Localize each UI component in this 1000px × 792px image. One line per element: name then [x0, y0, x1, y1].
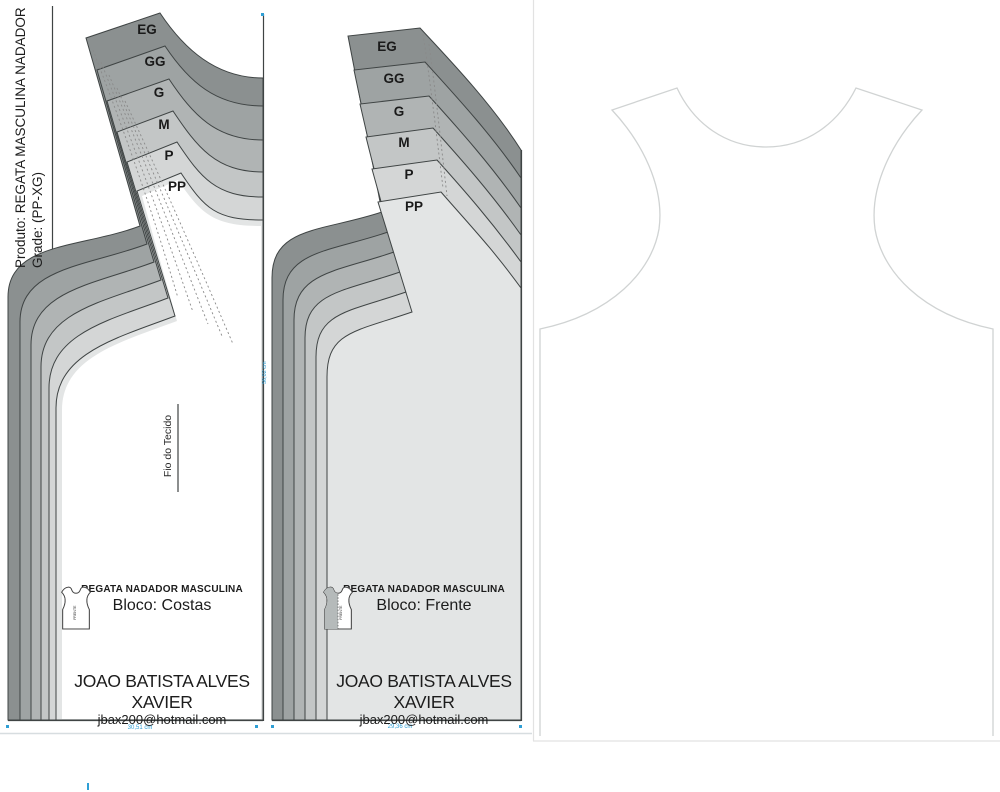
back-size-label-p: P — [164, 148, 173, 163]
front-author-email: jbax200@hotmail.com — [320, 712, 528, 727]
back-info-block: REGATA NADADOR MASCULINA Bloco: Costas C… — [58, 584, 266, 727]
back-size-label-pp: PP — [168, 179, 186, 194]
mini-tank-frente-label: FRENTE — [73, 605, 77, 620]
front-author-name: JOAO BATISTA ALVES XAVIER — [320, 671, 528, 713]
tank-top-outline-piece[interactable] — [540, 88, 993, 736]
grainline-label: Fio do Tecido — [162, 400, 174, 492]
measure-handle-mid-1[interactable] — [271, 725, 274, 728]
front-block-icons: COSTA FRENTE — [320, 619, 528, 666]
cursor-mark-bottom[interactable] — [87, 783, 89, 790]
product-info-label: Produto: REGATA MASCULINA NADADOR Grade:… — [12, 6, 47, 268]
selection-tick-top[interactable] — [261, 13, 264, 16]
mini-tank-front-icon: FRENTE — [58, 584, 94, 631]
back-size-label-gg: GG — [144, 54, 165, 69]
back-size-label-eg: EG — [137, 22, 157, 37]
front-size-label-g: G — [394, 104, 405, 119]
pattern-workspace: Produto: REGATA MASCULINA NADADOR Grade:… — [0, 0, 1000, 792]
product-name-line: Produto: REGATA MASCULINA NADADOR — [12, 6, 29, 268]
front-size-label-m: M — [398, 135, 409, 150]
back-author-name: JOAO BATISTA ALVES XAVIER — [58, 671, 266, 713]
back-size-label-m: M — [158, 117, 169, 132]
front-size-label-pp: PP — [405, 199, 423, 214]
front-size-label-eg: EG — [377, 39, 397, 54]
back-block-icons: COSTA FRENTE — [58, 619, 266, 666]
back-author-email: jbax200@hotmail.com — [58, 712, 266, 727]
front-side-measurement: 56,02 cm — [262, 361, 268, 384]
front-info-block: REGATA NADADOR MASCULINA Bloco: Frente C… — [320, 584, 528, 727]
measure-handle-left-1[interactable] — [6, 725, 9, 728]
mini-tank-frente-label: FRENTE — [339, 605, 343, 620]
front-size-label-p: P — [404, 167, 413, 182]
front-size-label-gg: GG — [383, 71, 404, 86]
grade-range-line: Grade: (PP-XG) — [29, 6, 46, 268]
mini-tank-front-icon: FRENTE — [320, 584, 356, 631]
back-size-label-g: G — [154, 85, 165, 100]
